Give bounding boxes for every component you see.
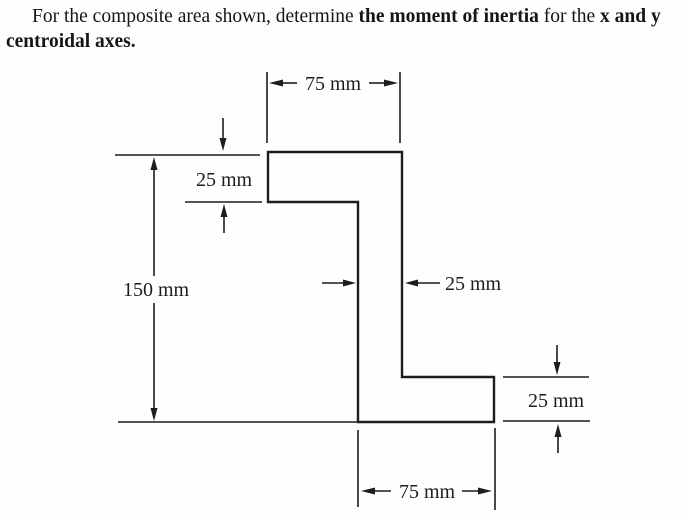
dim-top-width: 75 mm — [267, 72, 400, 143]
arrow-right-icon — [478, 488, 492, 495]
arrow-up-icon — [221, 204, 228, 217]
arrow-up-icon — [555, 424, 562, 437]
arrow-down-icon — [554, 362, 561, 375]
figure-canvas: 75 mm 25 mm 150 mm 25 mm — [0, 0, 684, 521]
dim-bottom-flange-thickness: 25 mm — [503, 345, 590, 453]
dim-web-thickness-label: 25 mm — [445, 273, 502, 295]
arrow-right-icon — [384, 80, 398, 87]
dim-overall-height-label: 150 mm — [123, 279, 190, 301]
arrow-left-icon — [361, 488, 375, 495]
dim-top-flange-thickness: 25 mm — [185, 118, 262, 233]
dim-bottom-flange-thickness-label: 25 mm — [528, 390, 585, 412]
arrow-right-icon — [343, 280, 356, 287]
dim-overall-height: 150 mm — [123, 157, 190, 421]
dim-top-width-label: 75 mm — [305, 73, 362, 95]
dim-bottom-width: 75 mm — [358, 428, 495, 510]
dim-web-thickness: 25 mm — [322, 273, 502, 295]
arrow-down-icon — [220, 138, 227, 151]
arrow-left-icon — [269, 80, 283, 87]
dim-top-flange-thickness-label: 25 mm — [196, 169, 253, 191]
arrow-left-icon — [405, 280, 418, 287]
dim-bottom-width-label: 75 mm — [399, 481, 456, 503]
page-root: For the composite area shown, determine … — [0, 0, 684, 521]
arrow-down-icon — [151, 408, 158, 421]
